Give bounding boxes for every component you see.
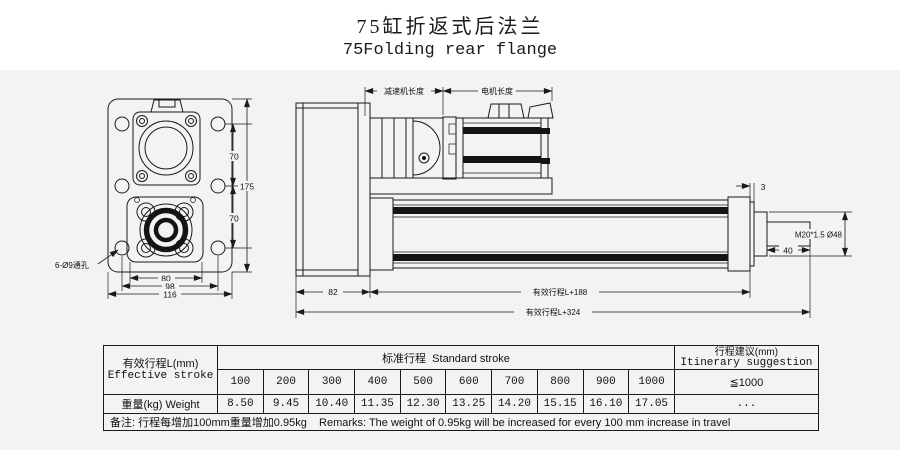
dim-70-top: 70	[229, 152, 239, 162]
stroke-value-cell: 800	[537, 370, 583, 395]
suggestion-header: 行程建议(mm) Itinerary suggestion	[674, 346, 818, 370]
motor-mount-plate	[370, 178, 552, 194]
weight-value-cell: 15.15	[537, 395, 583, 414]
rod-collar	[754, 212, 767, 256]
remarks-cell: 备注: 行程每增加100mm重量增加0.95kg Remarks: The we…	[104, 414, 819, 431]
engineering-drawing-page: 75缸折返式后法兰 75Folding rear flange	[0, 0, 900, 450]
dim-70-bottom: 70	[229, 214, 239, 224]
technical-drawing-canvas: 70 70 175 80 98	[0, 0, 900, 340]
cylinder-body	[370, 197, 810, 271]
weight-value-cell: 8.50	[218, 395, 264, 414]
dim-stroke-plus-324: 有效行程L+324	[526, 307, 581, 317]
front-view-dimensions-bottom: 80 98 116 6-Ø9通孔	[55, 250, 232, 300]
stroke-value-cell: 500	[400, 370, 446, 395]
specification-table: 有效行程L(mm) Effective stroke 标准行程 Standard…	[103, 345, 819, 431]
front-plate	[750, 202, 754, 266]
motor-clamp	[133, 100, 200, 185]
side-view: 减速机长度 电机长度 3 M20*1.5 Ø48 40	[296, 86, 852, 319]
stroke-value-cell: 600	[446, 370, 492, 395]
weight-extra-cell: ...	[674, 395, 818, 414]
weight-row-header: 重量(kg) Weight	[104, 395, 218, 414]
dim-116: 116	[163, 290, 177, 300]
dim-motor-length: 电机长度	[481, 86, 513, 96]
dim-175: 175	[240, 182, 254, 192]
dim-stroke-plus-188: 有效行程L+188	[533, 287, 588, 297]
dim-rear-length: 82	[328, 287, 338, 297]
side-view-dimensions-top: 减速机长度 电机长度	[365, 86, 552, 117]
weight-value-cell: 11.35	[355, 395, 401, 414]
front-view: 70 70 175 80 98	[55, 99, 257, 300]
stroke-value-cell: 900	[583, 370, 629, 395]
dim-gearbox-length: 减速机长度	[384, 86, 424, 96]
stroke-value-cell: 100	[218, 370, 264, 395]
stroke-value-cell: 200	[263, 370, 309, 395]
weight-value-cell: 14.20	[492, 395, 538, 414]
rod-thread-label: M20*1.5 Ø48	[795, 231, 843, 240]
stroke-value-cell: 400	[355, 370, 401, 395]
weight-value-cell: 12.30	[400, 395, 446, 414]
weight-value-cell: 17.05	[629, 395, 675, 414]
suggestion-en: Itinerary suggestion	[675, 358, 818, 369]
effective-stroke-header: 有效行程L(mm) Effective stroke	[104, 346, 218, 395]
weight-value-cell: 10.40	[309, 395, 355, 414]
through-holes-label: 6-Ø9通孔	[55, 260, 89, 270]
weight-value-cell: 16.10	[583, 395, 629, 414]
front-view-dimensions-right: 70 70 175	[225, 99, 257, 272]
effective-stroke-zh: 有效行程L(mm)	[104, 358, 217, 370]
dim-front-plate: 3	[761, 182, 766, 192]
motor-cable-wedge	[528, 103, 553, 118]
stroke-value-cell: 300	[309, 370, 355, 395]
through-holes	[115, 117, 225, 255]
standard-stroke-header: 标准行程 Standard stroke	[218, 346, 675, 370]
weight-value-cell: 13.25	[446, 395, 492, 414]
front-end-cap	[728, 197, 750, 271]
rear-flange-side	[296, 103, 370, 276]
motor-connector	[488, 104, 524, 118]
effective-stroke-en: Effective stroke	[104, 370, 217, 382]
weight-value-cell: 9.45	[263, 395, 309, 414]
gearbox	[370, 118, 443, 178]
motor	[443, 103, 553, 179]
stroke-value-cell: 1000	[629, 370, 675, 395]
stroke-value-cell: 700	[492, 370, 538, 395]
side-view-dimensions-right: 3 M20*1.5 Ø48 40	[736, 182, 852, 256]
bearing-flange	[127, 197, 203, 262]
dim-rod-length: 40	[783, 246, 793, 256]
suggestion-zh: 行程建议(mm)	[675, 347, 818, 358]
suggestion-value-cell: ≦1000	[674, 370, 818, 395]
